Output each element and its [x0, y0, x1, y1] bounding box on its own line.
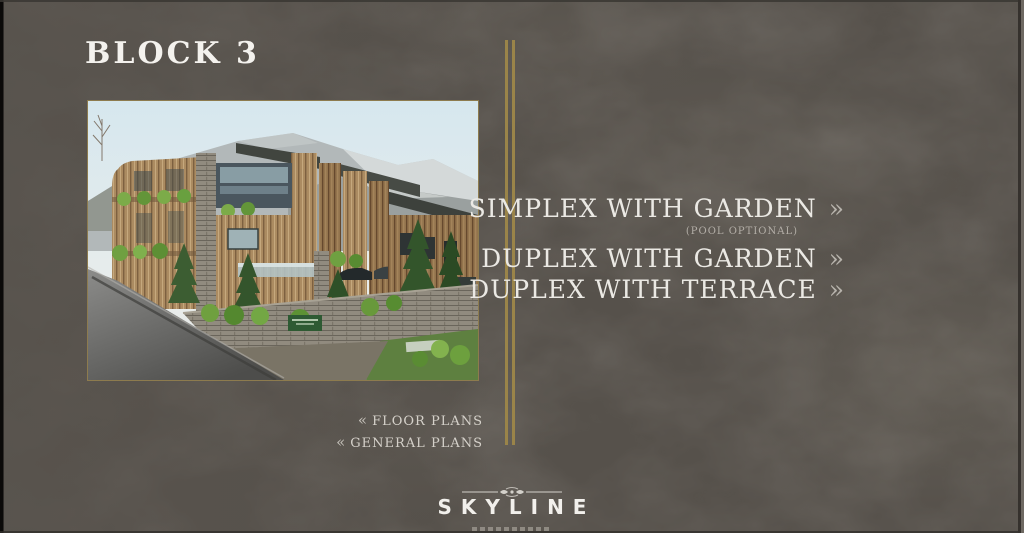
chevron-left-icon: « — [336, 433, 346, 451]
plans-nav-links: «FLOOR PLANS «GENERAL PLANS — [336, 410, 483, 454]
menu-item-simplex-with-garden[interactable]: SIMPLEX WITH GARDEN» — [469, 194, 844, 223]
brand-logo: SKYLINE — [0, 495, 1024, 519]
building-render-illustration — [88, 101, 478, 380]
nav-link-label: GENERAL PLANS — [350, 436, 483, 451]
pool-optional-note: (POOL OPTIONAL) — [469, 226, 844, 237]
menu-item-label: SIMPLEX WITH GARDEN — [469, 194, 817, 223]
menu-item-label: DUPLEX WITH TERRACE — [469, 275, 817, 304]
menu-item-duplex-with-terrace[interactable]: DUPLEX WITH TERRACE» — [469, 275, 844, 304]
menu-item-duplex-with-garden[interactable]: DUPLEX WITH GARDEN» — [469, 244, 844, 273]
unit-type-menu: SIMPLEX WITH GARDEN» (POOL OPTIONAL) DUP… — [469, 194, 844, 304]
menu-item-label: DUPLEX WITH GARDEN — [481, 244, 817, 273]
chevron-right-icon: » — [829, 244, 844, 273]
page-title: BLOCK 3 — [85, 36, 260, 71]
building-render-image — [87, 100, 479, 381]
screen-edge-top — [0, 0, 1024, 2]
nav-link-general-plans[interactable]: «GENERAL PLANS — [336, 432, 483, 454]
screen-edge-left-inner — [3, 0, 4, 533]
chevron-right-icon: » — [829, 275, 844, 304]
nav-link-floor-plans[interactable]: «FLOOR PLANS — [336, 410, 483, 432]
chevron-right-icon: » — [829, 194, 844, 223]
chevron-left-icon: « — [358, 411, 368, 429]
slide: BLOCK 3 — [0, 0, 1024, 533]
nav-link-label: FLOOR PLANS — [372, 414, 483, 429]
